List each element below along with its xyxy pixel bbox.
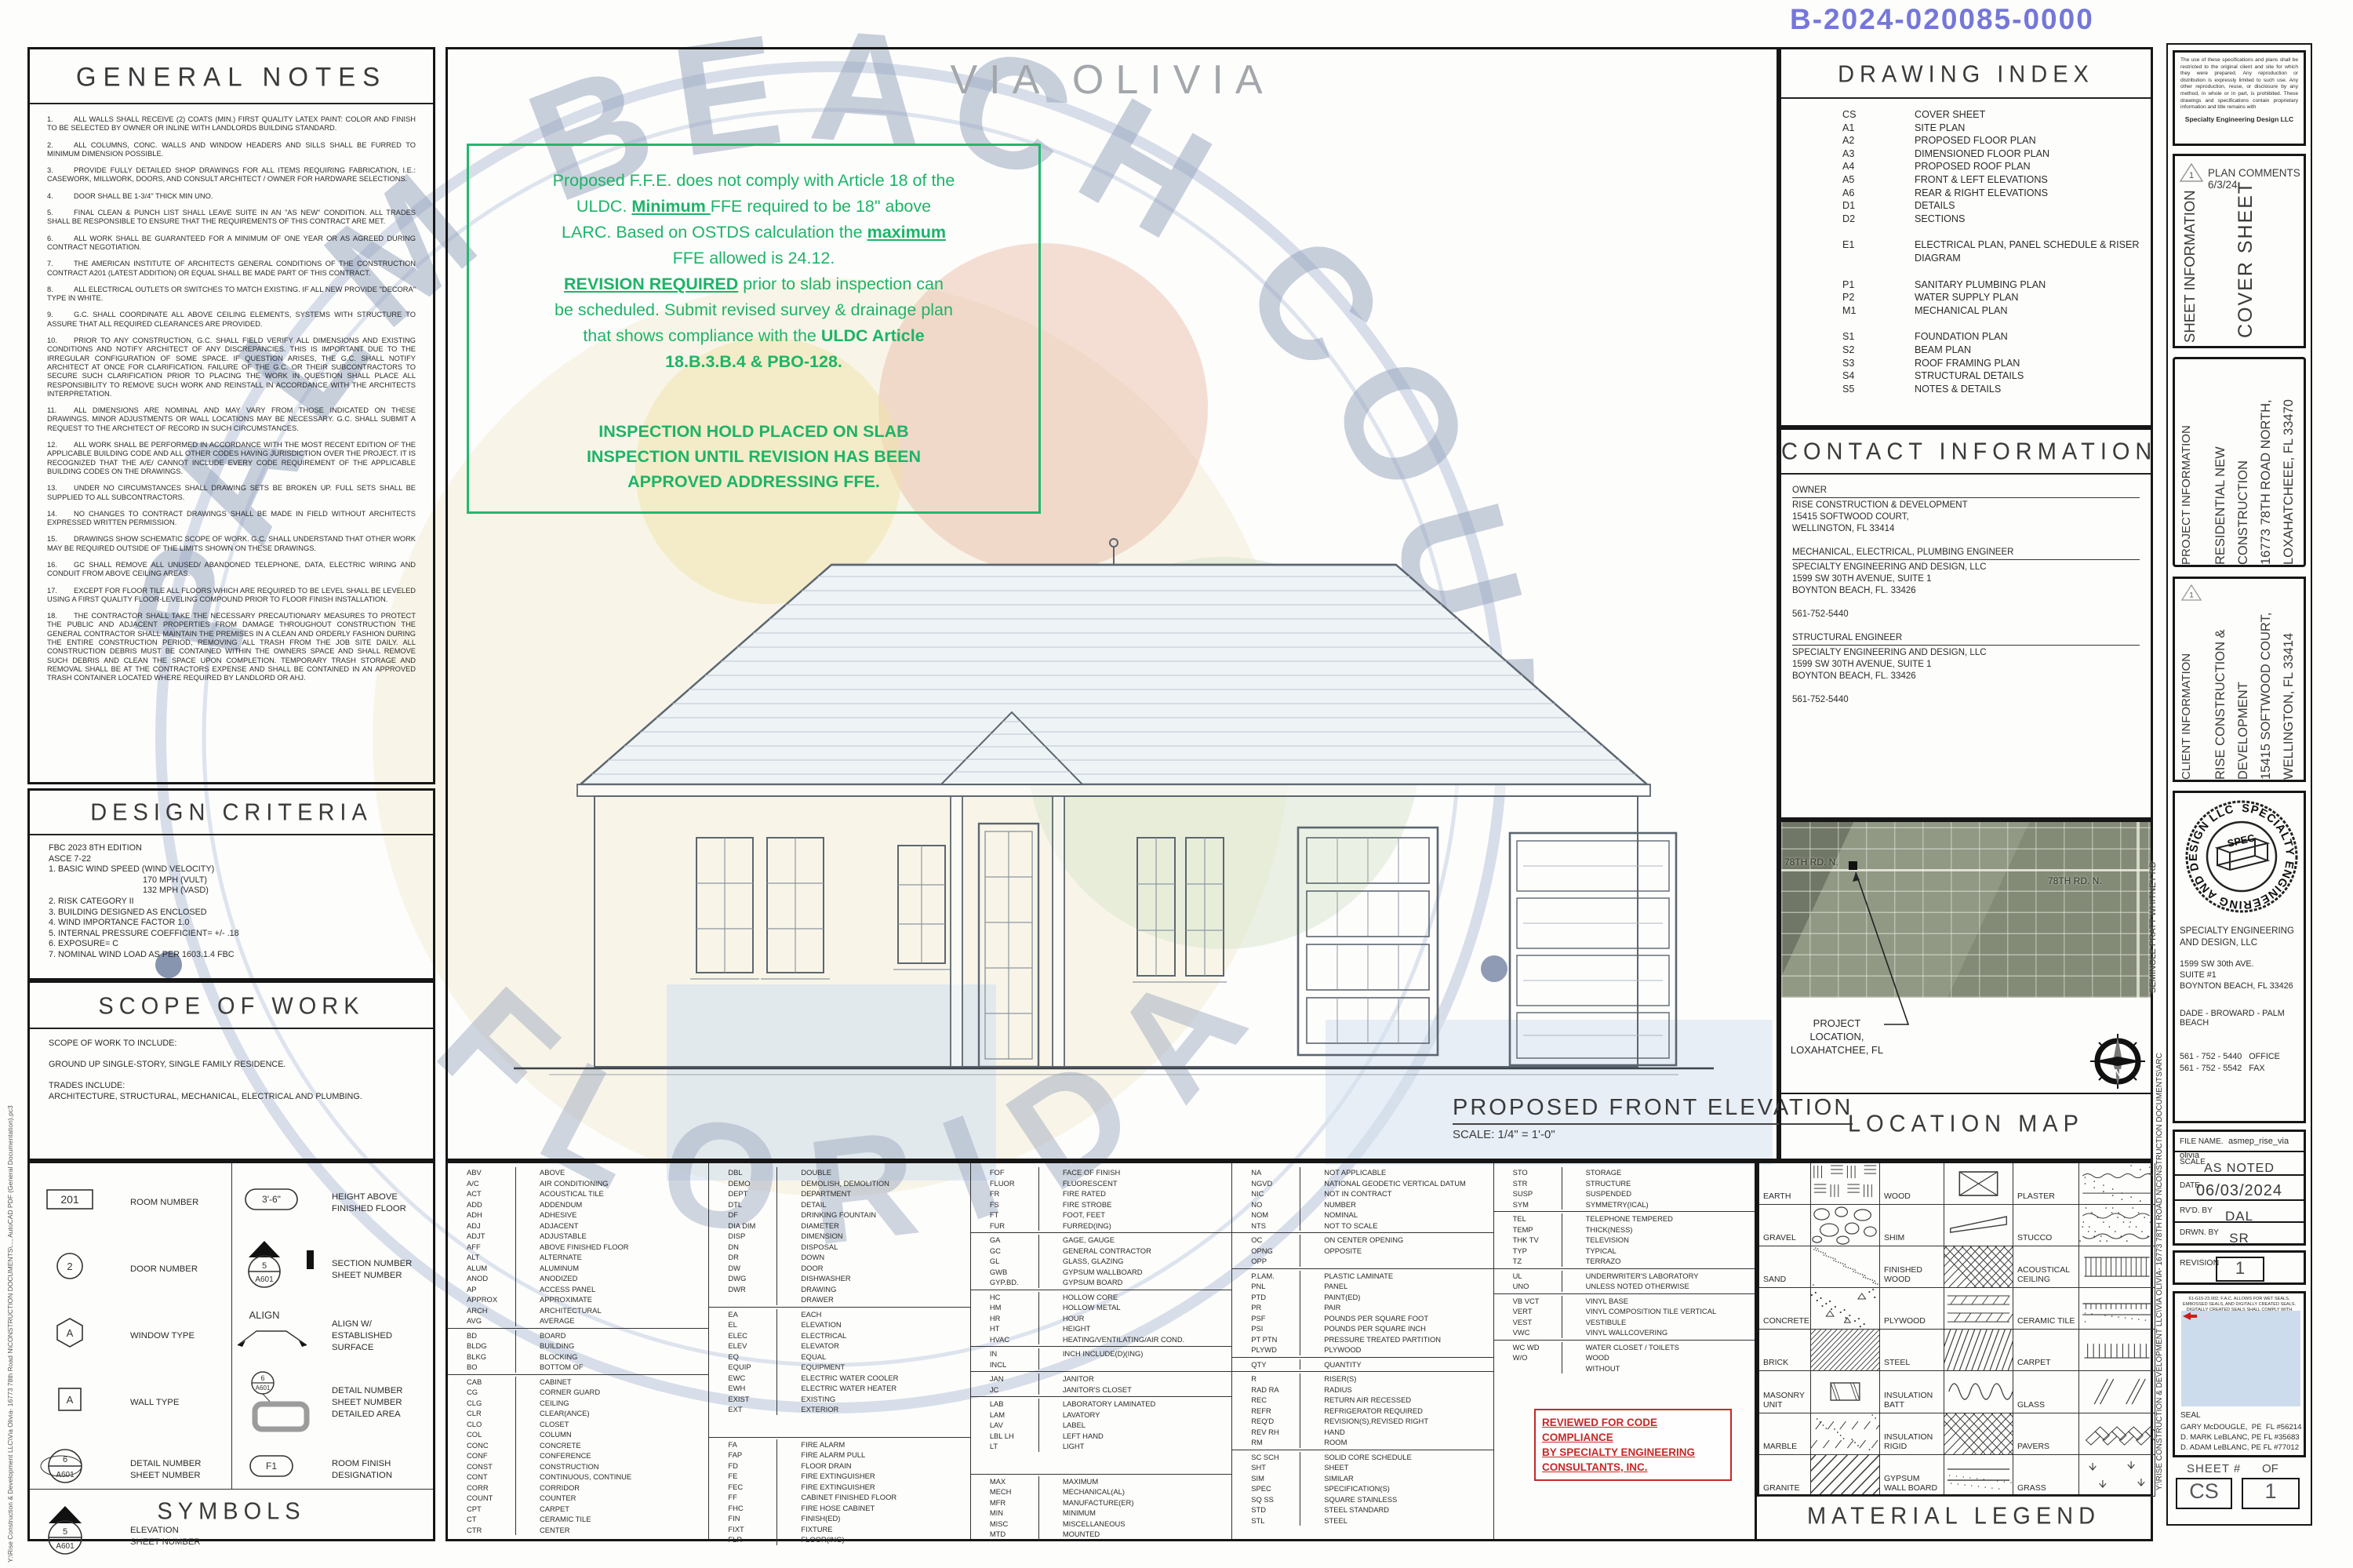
abbr-group: FAFIRE ALARMFAPFIRE ALARM PULLFDFLOOR DR… xyxy=(709,1437,969,1547)
abbr-row: DFDRINKING FOUNTAIN xyxy=(709,1210,969,1221)
legend-label: ACOUSTICAL CEILING xyxy=(2013,1246,2079,1288)
general-note: 8.ALL ELECTRICAL OUTLETS OR SWITCHES TO … xyxy=(47,286,416,304)
abbr-key: GWB xyxy=(971,1267,1038,1278)
abbr-key: THK TV xyxy=(1494,1235,1562,1246)
abbr-key: W/O xyxy=(1494,1352,1562,1363)
svg-text:2: 2 xyxy=(67,1261,72,1272)
abbr-key: DN xyxy=(709,1242,776,1253)
drawing-index-row: S3ROOF FRAMING PLAN xyxy=(1842,357,2143,370)
abbr-definition: REFRIGERATOR REQUIRED xyxy=(1300,1406,1493,1417)
abbr-key: QTY xyxy=(1232,1359,1300,1370)
general-notes-panel: GENERAL NOTES 1.ALL WALLS SHALL RECEIVE … xyxy=(27,47,435,784)
abbr-key: NO xyxy=(1232,1199,1300,1210)
abbr-row: JANJANITOR xyxy=(971,1373,1231,1384)
sheet-code: D2 xyxy=(1842,213,1915,226)
scale-label: SCALE xyxy=(2180,1158,2206,1166)
abbr-key: EQUIP xyxy=(709,1362,776,1373)
client-info-box: 1 CLIENT INFORMATION RISE CONSTRUCTION &… xyxy=(2173,577,2306,782)
abbr-row: FLRFLOOR(ING) xyxy=(709,1534,969,1545)
detail-area-icon: 6A601 xyxy=(231,1370,332,1436)
abbr-key: MISC xyxy=(971,1519,1038,1530)
abbr-row: MAXMAXIMUM xyxy=(971,1476,1231,1487)
legend-label: WOOD xyxy=(1880,1163,1944,1205)
abbr-row: EXISTEXISTING xyxy=(709,1394,969,1405)
svg-text:201: 201 xyxy=(60,1193,79,1206)
abbr-key: FIXT xyxy=(709,1524,776,1535)
abbr-key: FEC xyxy=(709,1482,776,1493)
legend-label: GRANITE xyxy=(1759,1455,1811,1497)
abbr-key: OPP xyxy=(1232,1256,1300,1267)
legend-label: GLASS xyxy=(2013,1371,2079,1413)
abbr-key: TYP xyxy=(1494,1246,1562,1257)
abbr-key: BD xyxy=(448,1330,515,1341)
abbr-key: FD xyxy=(709,1461,776,1472)
abbr-row: LTLIGHT xyxy=(971,1441,1231,1452)
abbr-definition: BLOCKING xyxy=(515,1352,708,1362)
abbr-definition: EXTERIOR xyxy=(776,1404,969,1415)
abbr-definition: MISCELLANEOUS xyxy=(1038,1519,1231,1530)
legend-label: MARBLE xyxy=(1759,1413,1811,1455)
abbr-row: RMROOM xyxy=(1232,1437,1493,1448)
abbr-definition: GENERAL CONTRACTOR xyxy=(1038,1246,1231,1257)
abbr-definition: DOWN xyxy=(776,1252,969,1263)
abbr-key: EA xyxy=(709,1309,776,1320)
abbr-definition: HAND xyxy=(1300,1427,1493,1438)
abbr-key: NOM xyxy=(1232,1210,1300,1221)
abbr-row: FOFFACE OF FINISH xyxy=(971,1167,1231,1178)
ffe-note-text: Proposed F.F.E. does not comply with Art… xyxy=(478,168,1029,375)
room-number-icon: 201 xyxy=(30,1170,130,1236)
sheet-name: COVER SHEET xyxy=(2235,180,2257,338)
abbr-key: OC xyxy=(1232,1235,1300,1246)
abbr-row: EXTEXTERIOR xyxy=(709,1404,969,1415)
abbr-key: LT xyxy=(971,1441,1038,1452)
abbr-group: VB VCTVINYL BASEVERTVINYL COMPOSITION TI… xyxy=(1494,1293,1755,1340)
legend-label: SAND xyxy=(1759,1246,1811,1288)
abbr-group: JANJANITORJCJANITOR'S CLOSET xyxy=(971,1371,1231,1396)
general-note: 12.ALL WORK SHALL BE PERFORMED IN ACCORD… xyxy=(47,441,416,476)
drawing-index-row: P1SANITARY PLUMBING PLAN xyxy=(1842,278,2143,292)
criteria-line: 5. INTERNAL PRESSURE COEFFICIENT= +/- .1… xyxy=(49,929,414,940)
design-criteria-lines: FBC 2023 8TH EDITIONASCE 7-221. BASIC WI… xyxy=(30,835,433,961)
abbr-row: VERTVINYL COMPOSITION TILE VERTICAL xyxy=(1494,1306,1755,1317)
sheet-title: PROPOSED ROOF PLAN xyxy=(1915,160,2143,173)
symbol-label: DETAIL NUMBERSHEET NUMBER xyxy=(130,1458,201,1482)
scope-line xyxy=(49,1050,414,1060)
abbr-key: CTR xyxy=(448,1525,515,1536)
abbr-group: LABLABORATORY LAMINATEDLAMLAVATORYLAVLAB… xyxy=(971,1396,1231,1453)
svg-text:A: A xyxy=(67,1394,74,1406)
abbr-key: CONF xyxy=(448,1450,515,1461)
abbr-key: COUNT xyxy=(448,1493,515,1504)
abbr-row: DEPTDEPARTMENT xyxy=(709,1188,969,1199)
abbr-group: OCON CENTER OPENINGOPNGOPPOSITEOPP xyxy=(1232,1232,1493,1268)
general-note: 4.DOOR SHALL BE 1-3/4" THICK MIN UNO. xyxy=(47,192,416,201)
abbr-key: MTD xyxy=(971,1529,1038,1540)
abbr-definition: FLOOR(ING) xyxy=(776,1534,969,1545)
abbr-key: MECH xyxy=(971,1486,1038,1497)
abbr-key: DW xyxy=(709,1263,776,1274)
abbr-row: CLGCEILING xyxy=(448,1398,708,1409)
sheet-number-block: SHEET # OF CS 1 xyxy=(2173,1462,2306,1517)
abbr-definition: NATIONAL GEODETIC VERTICAL DATUM xyxy=(1300,1178,1493,1189)
ffe-note-line: ULDC. Minimum FFE required to be 18" abo… xyxy=(478,194,1029,220)
abbr-definition: FURRED(ING) xyxy=(1038,1221,1231,1231)
symbols-title: SYMBOLS xyxy=(30,1498,433,1526)
drawing-index-row: A1SITE PLAN xyxy=(1842,122,2143,135)
legend-swatch-plaster xyxy=(2079,1163,2155,1205)
abbr-definition: ADHESIVE xyxy=(515,1210,708,1221)
sheet-code: S4 xyxy=(1842,369,1915,383)
firm-address: 1599 SW 30th AVE. SUITE #1 BOYNTON BEACH… xyxy=(2180,959,2299,991)
sheet-title: NOTES & DETAILS xyxy=(1915,383,2143,396)
abbr-definition: LABEL xyxy=(1038,1420,1231,1431)
abbr-row: DIA DIMDIAMETER xyxy=(709,1221,969,1231)
abbr-row: TEMPTHICK(NESS) xyxy=(1494,1224,1755,1235)
abbr-definition: ON CENTER OPENING xyxy=(1300,1235,1493,1246)
abbr-key: DTL xyxy=(709,1199,776,1210)
abbr-definition: CARPET xyxy=(515,1504,708,1515)
abbr-row: FIXTFIXTURE xyxy=(709,1524,969,1535)
abbr-key: DWR xyxy=(709,1284,776,1295)
legend-swatch-wood xyxy=(1944,1163,2013,1205)
abbr-key: ARCH xyxy=(448,1305,515,1316)
symbol-label: ROOM NUMBER xyxy=(130,1197,198,1209)
drawing-index-row: A3DIMENSIONED FLOOR PLAN xyxy=(1842,147,2143,161)
abbr-key: WC WD xyxy=(1494,1342,1562,1353)
disclaimer-firm: Specialty Engineering Design LLC xyxy=(2180,115,2298,123)
abbr-definition: JANITOR xyxy=(1038,1373,1231,1384)
abbr-key: CONT xyxy=(448,1472,515,1483)
abbr-row: STLSTEEL xyxy=(1232,1515,1493,1526)
abbr-definition: ADJACENT xyxy=(515,1221,708,1231)
abbr-row: HVACHEATING/VENTILATING/AIR COND. xyxy=(971,1334,1231,1345)
legend-swatch-carpet xyxy=(2079,1330,2155,1371)
abbr-column: STOSTORAGESTRSTRUCTURESUSPSUSPENDEDSYMSY… xyxy=(1493,1163,1755,1539)
criteria-line: ASCE 7-22 xyxy=(49,854,414,865)
abbr-key: STL xyxy=(1232,1515,1300,1526)
abbr-row: SPECSPECIFICATION(S) xyxy=(1232,1483,1493,1494)
abbr-row: BOBOTTOM OF xyxy=(448,1362,708,1373)
sheet-code: M1 xyxy=(1842,304,1915,318)
north-arrow-icon: N xyxy=(2089,1032,2147,1090)
abbr-row: PT PTNPRESSURE TREATED PARTITION xyxy=(1232,1334,1493,1345)
firm-region: DADE - BROWARD - PALM BEACH xyxy=(2180,1009,2299,1028)
abbr-row: P.LAM.PLASTIC LAMINATE xyxy=(1232,1271,1493,1282)
disclaimer-box: The use of these specifications and plan… xyxy=(2173,50,2306,146)
abbr-row: SYMSYMMETRY(ICAL) xyxy=(1494,1199,1755,1210)
client-line: WELLINGTON, FL 33414 xyxy=(2278,584,2300,780)
ffe-note-line: REVISION REQUIRED prior to slab inspecti… xyxy=(478,271,1029,297)
abbr-definition: CORNER GUARD xyxy=(515,1387,708,1398)
legend-swatch-steel xyxy=(1944,1330,2013,1371)
abbr-group: CABCABINETCGCORNER GUARDCLGCEILINGCLRCLE… xyxy=(448,1374,708,1537)
abbr-key: ADJT xyxy=(448,1231,515,1242)
abbr-row: HTHEIGHT xyxy=(971,1323,1231,1334)
abbr-row: LABLABORATORY LAMINATED xyxy=(971,1399,1231,1410)
sheet-title: ELECTRICAL PLAN, PANEL SCHEDULE & RISER … xyxy=(1915,238,2143,264)
abbr-definition: FLOOR DRAIN xyxy=(776,1461,969,1472)
abbr-definition: FIRE STROBE xyxy=(1038,1199,1231,1210)
abbr-key: FA xyxy=(709,1439,776,1450)
abbr-key: FLUOR xyxy=(971,1178,1038,1189)
project-info-label: PROJECT INFORMATION xyxy=(2180,425,2193,565)
abbr-definition: NUMBER xyxy=(1300,1199,1493,1210)
abbr-definition: PLYWOOD xyxy=(1300,1344,1493,1355)
abbr-key: NA xyxy=(1232,1167,1300,1178)
abbr-definition: FIRE HOSE CABINET xyxy=(776,1503,969,1514)
abbr-definition: TYPICAL xyxy=(1562,1246,1755,1257)
drawing-index-row: D1DETAILS xyxy=(1842,199,2143,213)
abbr-definition: LIGHT xyxy=(1038,1441,1231,1452)
abbr-group: NANOT APPLICABLENGVDNATIONAL GEODETIC VE… xyxy=(1232,1166,1493,1232)
abbr-definition: PLASTIC LAMINATE xyxy=(1300,1271,1493,1282)
specialty-engineering-logo: SPECIALTY ENGINEERING AND DESIGN LLC SPE… xyxy=(2180,798,2304,915)
abbr-definition: ALTERNATE xyxy=(515,1252,708,1263)
abbr-key: SHT xyxy=(1232,1462,1300,1473)
abbr-row: GYP.BD.GYPSUM BOARD xyxy=(971,1277,1231,1288)
abbr-row: GWBGYPSUM WALLBOARD xyxy=(971,1267,1231,1278)
abbr-row: ADJTADJUSTABLE xyxy=(448,1231,708,1242)
legend-label: EARTH xyxy=(1759,1163,1811,1205)
revision-triangle-icon: 1 xyxy=(2181,584,2202,602)
abbr-definition xyxy=(1038,1359,1231,1370)
abbr-group: ININCH INCLUDE(D)(ING)INCL xyxy=(971,1346,1231,1371)
drawing-index-row: S2BEAM PLAN xyxy=(1842,344,2143,357)
general-note: 6.ALL WORK SHALL BE GUARANTEED FOR A MIN… xyxy=(47,235,416,253)
symbol-label: DOOR NUMBER xyxy=(130,1264,198,1275)
legend-label: GYPSUM WALL BOARD xyxy=(1880,1455,1944,1497)
abbr-definition: ROOM xyxy=(1300,1437,1493,1448)
abbr-key: DEPT xyxy=(709,1188,776,1199)
sheet-code: P1 xyxy=(1842,278,1915,292)
drawing-index-group: CSCOVER SHEETA1SITE PLANA2PROPOSED FLOOR… xyxy=(1842,108,2143,225)
abbr-row: NANOT APPLICABLE xyxy=(1232,1167,1493,1178)
abbreviations-table: ABVABOVEA/CAIR CONDITIONINGACTACOUSTICAL… xyxy=(446,1161,1757,1541)
firm-name: SPECIALTY ENGINEERING AND DESIGN, LLC xyxy=(2180,926,2299,949)
abbr-key: FUR xyxy=(971,1221,1038,1231)
criteria-line: 3. BUILDING DESIGNED AS ENCLOSED xyxy=(49,908,414,919)
drawing-index-row: S4STRUCTURAL DETAILS xyxy=(1842,369,2143,383)
legend-swatch-finwood xyxy=(1944,1246,2013,1288)
symbol-label: ROOM FINISHDESIGNATION xyxy=(332,1458,392,1482)
abbr-definition: FLUORESCENT xyxy=(1038,1178,1231,1189)
abbr-key: A/C xyxy=(448,1178,515,1189)
abbr-definition: FIRE ALARM xyxy=(776,1439,969,1450)
abbr-key: OPNG xyxy=(1232,1246,1300,1257)
abbr-definition: FIRE ALARM PULL xyxy=(776,1450,969,1461)
svg-text:1: 1 xyxy=(2189,591,2193,600)
abbr-definition: OPPOSITE xyxy=(1300,1246,1493,1257)
abbr-row: DISPDIMENSION xyxy=(709,1231,969,1242)
drawing-index-row: A5FRONT & LEFT ELEVATIONS xyxy=(1842,173,2143,187)
abbr-row: SC SCHSOLID CORE SCHEDULE xyxy=(1232,1452,1493,1463)
door-number-icon: 2 xyxy=(30,1236,130,1303)
abbr-definition: UNDERWRITER'S LABORATORY xyxy=(1562,1271,1755,1282)
abbr-definition: NOT IN CONTRACT xyxy=(1300,1188,1493,1199)
abbr-definition xyxy=(1300,1256,1493,1267)
sheet-num-label: SHEET # xyxy=(2187,1462,2241,1475)
legend-label: CERAMIC TILE xyxy=(2013,1288,2079,1330)
abbr-key: IN xyxy=(971,1348,1038,1359)
abbr-row: CONSTCONSTRUCTION xyxy=(448,1461,708,1472)
legend-swatch-brick xyxy=(1811,1330,1880,1371)
abbr-definition: AIR CONDITIONING xyxy=(515,1178,708,1189)
abbr-definition: DIAMETER xyxy=(776,1221,969,1231)
of-label: OF xyxy=(2262,1462,2278,1475)
abbr-row: FEFIRE EXTINGUISHER xyxy=(709,1471,969,1482)
legend-label: BRICK xyxy=(1759,1330,1811,1371)
contact-lines: SPECIALTY ENGINEERING AND DESIGN, LLC 15… xyxy=(1792,562,2140,620)
abbr-group: STOSTORAGESTRSTRUCTURESUSPSUSPENDEDSYMSY… xyxy=(1494,1166,1755,1211)
revision-triangle-icon: 1 xyxy=(2180,162,2203,183)
abbr-row: EQEQUAL xyxy=(709,1352,969,1362)
contact-section: MECHANICAL, ELECTRICAL, PLUMBING ENGINEE… xyxy=(1792,548,2140,620)
hold-line: INSPECTION HOLD PLACED ON SLAB xyxy=(478,419,1029,444)
abbr-column: ABVABOVEA/CAIR CONDITIONINGACTACOUSTICAL… xyxy=(448,1163,708,1539)
sheet-code: CS xyxy=(1842,108,1915,122)
abbr-definition: ARCHITECTURAL xyxy=(515,1305,708,1316)
abbr-definition: QUANTITY xyxy=(1300,1359,1493,1370)
abbr-key: ABV xyxy=(448,1167,515,1178)
abbr-definition: RISER(S) xyxy=(1300,1373,1493,1384)
abbr-key: FAP xyxy=(709,1450,776,1461)
abbr-row: LBL LHLEFT HAND xyxy=(971,1431,1231,1442)
abbr-row: VB VCTVINYL BASE xyxy=(1494,1296,1755,1307)
symbol-label: ALIGN W/ ESTABLISHEDSURFACE xyxy=(332,1319,433,1354)
sheet-code: D1 xyxy=(1842,199,1915,213)
abbr-row: NONUMBER xyxy=(1232,1199,1493,1210)
abbr-definition: EQUAL xyxy=(776,1352,969,1362)
legend-swatch-marble xyxy=(1811,1413,1880,1455)
abbr-key: STD xyxy=(1232,1504,1300,1515)
abbr-key: GC xyxy=(971,1246,1038,1257)
abbr-row: REQ'DREVISION(S),REVISED RIGHT xyxy=(1232,1416,1493,1427)
contact-heading: MECHANICAL, ELECTRICAL, PLUMBING ENGINEE… xyxy=(1792,548,2140,560)
abbr-definition: ALUMINUM xyxy=(515,1263,708,1274)
legend-label: PLYWOOD xyxy=(1880,1288,1944,1330)
abbr-key: P.LAM. xyxy=(1232,1271,1300,1282)
abbr-key xyxy=(1494,1363,1562,1374)
symbol-row: 3'-6"HEIGHT ABOVEFINISHED FLOOR xyxy=(231,1170,433,1236)
abbr-definition: DISHWASHER xyxy=(776,1273,969,1284)
abbr-row: COLCOLUMN xyxy=(448,1429,708,1440)
abbr-definition: FIRE EXTINGUISHER xyxy=(776,1471,969,1482)
drawing-index-group: E1ELECTRICAL PLAN, PANEL SCHEDULE & RISE… xyxy=(1842,238,2143,264)
abbr-key: RAD RA xyxy=(1232,1384,1300,1395)
abbr-definition: RADIUS xyxy=(1300,1384,1493,1395)
revision-value: 1 xyxy=(2216,1257,2264,1282)
abbr-key: NIC xyxy=(1232,1188,1300,1199)
svg-text:N: N xyxy=(2114,1067,2121,1079)
material-legend-title: MATERIAL LEGEND xyxy=(1757,1503,2151,1530)
sheet-title: REAR & RIGHT ELEVATIONS xyxy=(1915,187,2143,200)
abbr-key: CLO xyxy=(448,1419,515,1430)
drawing-index-panel: DRAWING INDEX CSCOVER SHEETA1SITE PLANA2… xyxy=(1779,47,2153,427)
abbr-key: EWC xyxy=(709,1373,776,1384)
abbr-definition: FIRE EXTINGUISHER xyxy=(776,1482,969,1493)
abbr-definition: POUNDS PER SQUARE FOOT xyxy=(1300,1313,1493,1324)
abbr-key: FE xyxy=(709,1471,776,1482)
abbr-group: SC SCHSOLID CORE SCHEDULESHTSHEETSIMSIMI… xyxy=(1232,1450,1493,1528)
abbr-definition: CABINET FINISHED FLOOR xyxy=(776,1492,969,1503)
firm-phones: 561 - 752 - 5440 OFFICE 561 - 752 - 5542… xyxy=(2180,1051,2299,1075)
abbr-row: TYPTYPICAL xyxy=(1494,1246,1755,1257)
abbr-key: HT xyxy=(971,1323,1038,1334)
drawing-index-row: A6REAR & RIGHT ELEVATIONS xyxy=(1842,187,2143,200)
abbr-definition: ELECTRIC WATER COOLER xyxy=(776,1373,969,1384)
abbr-definition: CLEAR(ANCE) xyxy=(515,1408,708,1419)
abbr-definition: THICK(NESS) xyxy=(1562,1224,1755,1235)
project-line: RESIDENTIAL NEW xyxy=(2209,364,2232,565)
abbr-definition: ELEVATOR xyxy=(776,1341,969,1352)
contact-info-list: OWNERRISE CONSTRUCTION & DEVELOPMENT 154… xyxy=(1781,475,2151,706)
abbr-row: FAFIRE ALARM xyxy=(709,1439,969,1450)
date-value: 06/03/2024 xyxy=(2180,1182,2299,1200)
abbr-key: BLDG xyxy=(448,1341,515,1352)
abbr-key: ALT xyxy=(448,1252,515,1263)
symbol-label: DETAIL NUMBERSHEET NUMBERDETAILED AREA xyxy=(332,1385,402,1421)
svg-text:A601: A601 xyxy=(56,1542,75,1551)
abbr-row: WC WDWATER CLOSET / TOILETS xyxy=(1494,1342,1755,1353)
abbr-definition: CONCRETE xyxy=(515,1440,708,1451)
abbr-definition: NOT APPLICABLE xyxy=(1300,1167,1493,1178)
abbr-definition: POUNDS PER SQUARE INCH xyxy=(1300,1323,1493,1334)
abbr-row: FURFURRED(ING) xyxy=(971,1221,1231,1231)
abbr-group: RRISER(S)RAD RARADIUSRECRETURN AIR RECES… xyxy=(1232,1371,1493,1450)
abbr-definition: EACH xyxy=(776,1309,969,1320)
general-note: 16.GC SHALL REMOVE ALL UNUSED/ ABANDONED… xyxy=(47,561,416,579)
scope-line: SCOPE OF WORK TO INCLUDE: xyxy=(49,1039,414,1050)
abbr-key: FS xyxy=(971,1199,1038,1210)
abbr-definition: AVERAGE xyxy=(515,1315,708,1326)
abbr-definition: RETURN AIR RECESSED xyxy=(1300,1395,1493,1406)
seal-box: 61-G15-23.002, F.A.C. ALLOWS FOR WET SEA… xyxy=(2173,1291,2306,1457)
sheet-title: COVER SHEET xyxy=(1915,108,2143,122)
criteria-line: FBC 2023 8TH EDITION xyxy=(49,843,414,854)
abbr-key: DWG xyxy=(709,1273,776,1284)
abbr-definition: CONFERENCE xyxy=(515,1450,708,1461)
sheet-code: S2 xyxy=(1842,344,1915,357)
abbr-row: BLDGBUILDING xyxy=(448,1341,708,1352)
abbr-definition: NOT TO SCALE xyxy=(1300,1221,1493,1231)
sheet-title: MECHANICAL PLAN xyxy=(1915,304,2143,318)
abbr-row: EAEACH xyxy=(709,1309,969,1320)
abbr-row: SHTSHEET xyxy=(1232,1462,1493,1473)
abbr-key: HC xyxy=(971,1292,1038,1303)
abbr-row: GCGENERAL CONTRACTOR xyxy=(971,1246,1231,1257)
general-note: 15.DRAWINGS SHOW SCHEMATIC SCOPE OF WORK… xyxy=(47,535,416,553)
abbr-key: EQ xyxy=(709,1352,776,1362)
abbr-row: DBLDOUBLE xyxy=(709,1167,969,1178)
abbr-row: VWCVINYL WALLCOVERING xyxy=(1494,1327,1755,1338)
abbr-key: CAB xyxy=(448,1377,515,1388)
abbr-definition: BOARD xyxy=(515,1330,708,1341)
abbr-row: BLKGBLOCKING xyxy=(448,1352,708,1362)
legend-swatch-pavers xyxy=(2079,1413,2155,1455)
abbr-key: PSI xyxy=(1232,1323,1300,1334)
sheet-title: SANITARY PLUMBING PLAN xyxy=(1915,278,2143,292)
elevation-scale: SCALE: 1/4" = 1'-0" xyxy=(1453,1128,1555,1141)
general-note: 7.THE AMERICAN INSTITUTE OF ARCHITECTS G… xyxy=(47,260,416,278)
abbr-row: ELEVELEVATOR xyxy=(709,1341,969,1352)
abbr-key: ADH xyxy=(448,1210,515,1221)
abbr-definition: CERAMIC TILE xyxy=(515,1514,708,1525)
abbr-definition: VESTIBULE xyxy=(1562,1317,1755,1328)
abbr-row: DNDISPOSAL xyxy=(709,1242,969,1253)
abbr-key: CT xyxy=(448,1514,515,1525)
client-line: DEVELOPMENT xyxy=(2232,584,2255,780)
